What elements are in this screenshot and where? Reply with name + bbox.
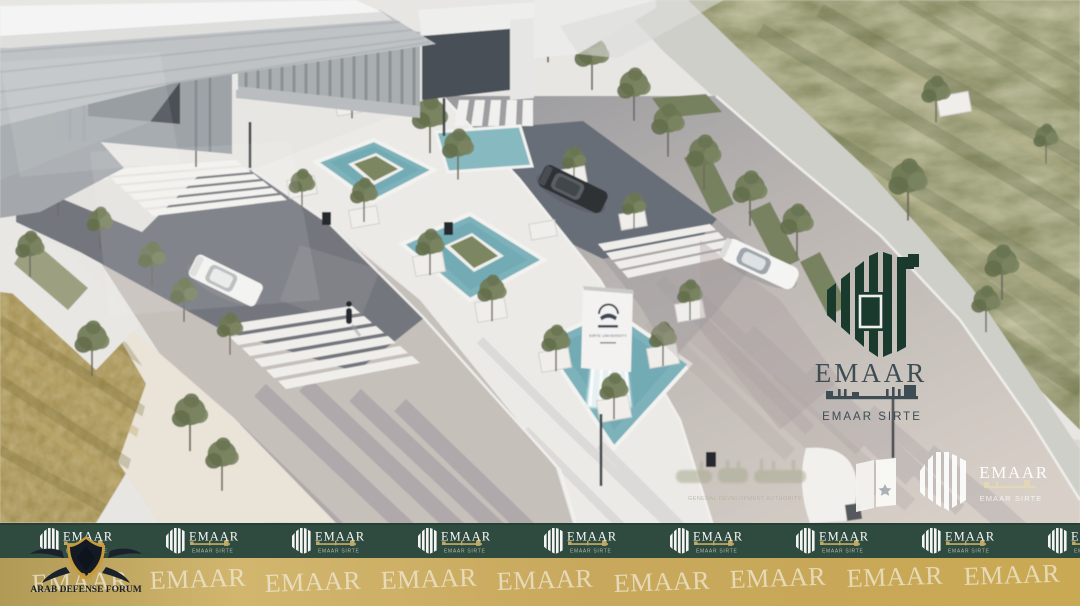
svg-text:EMAAR: EMAAR — [264, 566, 362, 598]
svg-text:EMAAR: EMAAR — [729, 562, 827, 594]
svg-text:EMAAR: EMAAR — [979, 463, 1048, 482]
svg-text:EMAAR SIRTE: EMAAR SIRTE — [980, 494, 1043, 503]
svg-text:EMAAR: EMAAR — [963, 559, 1061, 591]
svg-text:SIRTE UNIVERSITY: SIRTE UNIVERSITY — [589, 334, 627, 338]
svg-text:EMAAR: EMAAR — [846, 561, 944, 593]
svg-text:EMAAR: EMAAR — [613, 566, 711, 598]
svg-text:defense-arab.com: defense-arab.com — [60, 597, 112, 604]
svg-text:EMAAR: EMAAR — [815, 358, 928, 388]
svg-text:ARAB DEFENSE FORUM: ARAB DEFENSE FORUM — [30, 585, 141, 595]
svg-text:EMAAR: EMAAR — [149, 563, 247, 595]
svg-text:EMAAR: EMAAR — [380, 563, 478, 595]
svg-text:EMAAR SIRTE: EMAAR SIRTE — [822, 411, 922, 423]
svg-text:DA: DA — [80, 571, 92, 581]
svg-text:GENERAL DEVELOPMENT AUTHORITY: GENERAL DEVELOPMENT AUTHORITY — [688, 496, 802, 502]
svg-text:EMAAR: EMAAR — [496, 564, 594, 596]
